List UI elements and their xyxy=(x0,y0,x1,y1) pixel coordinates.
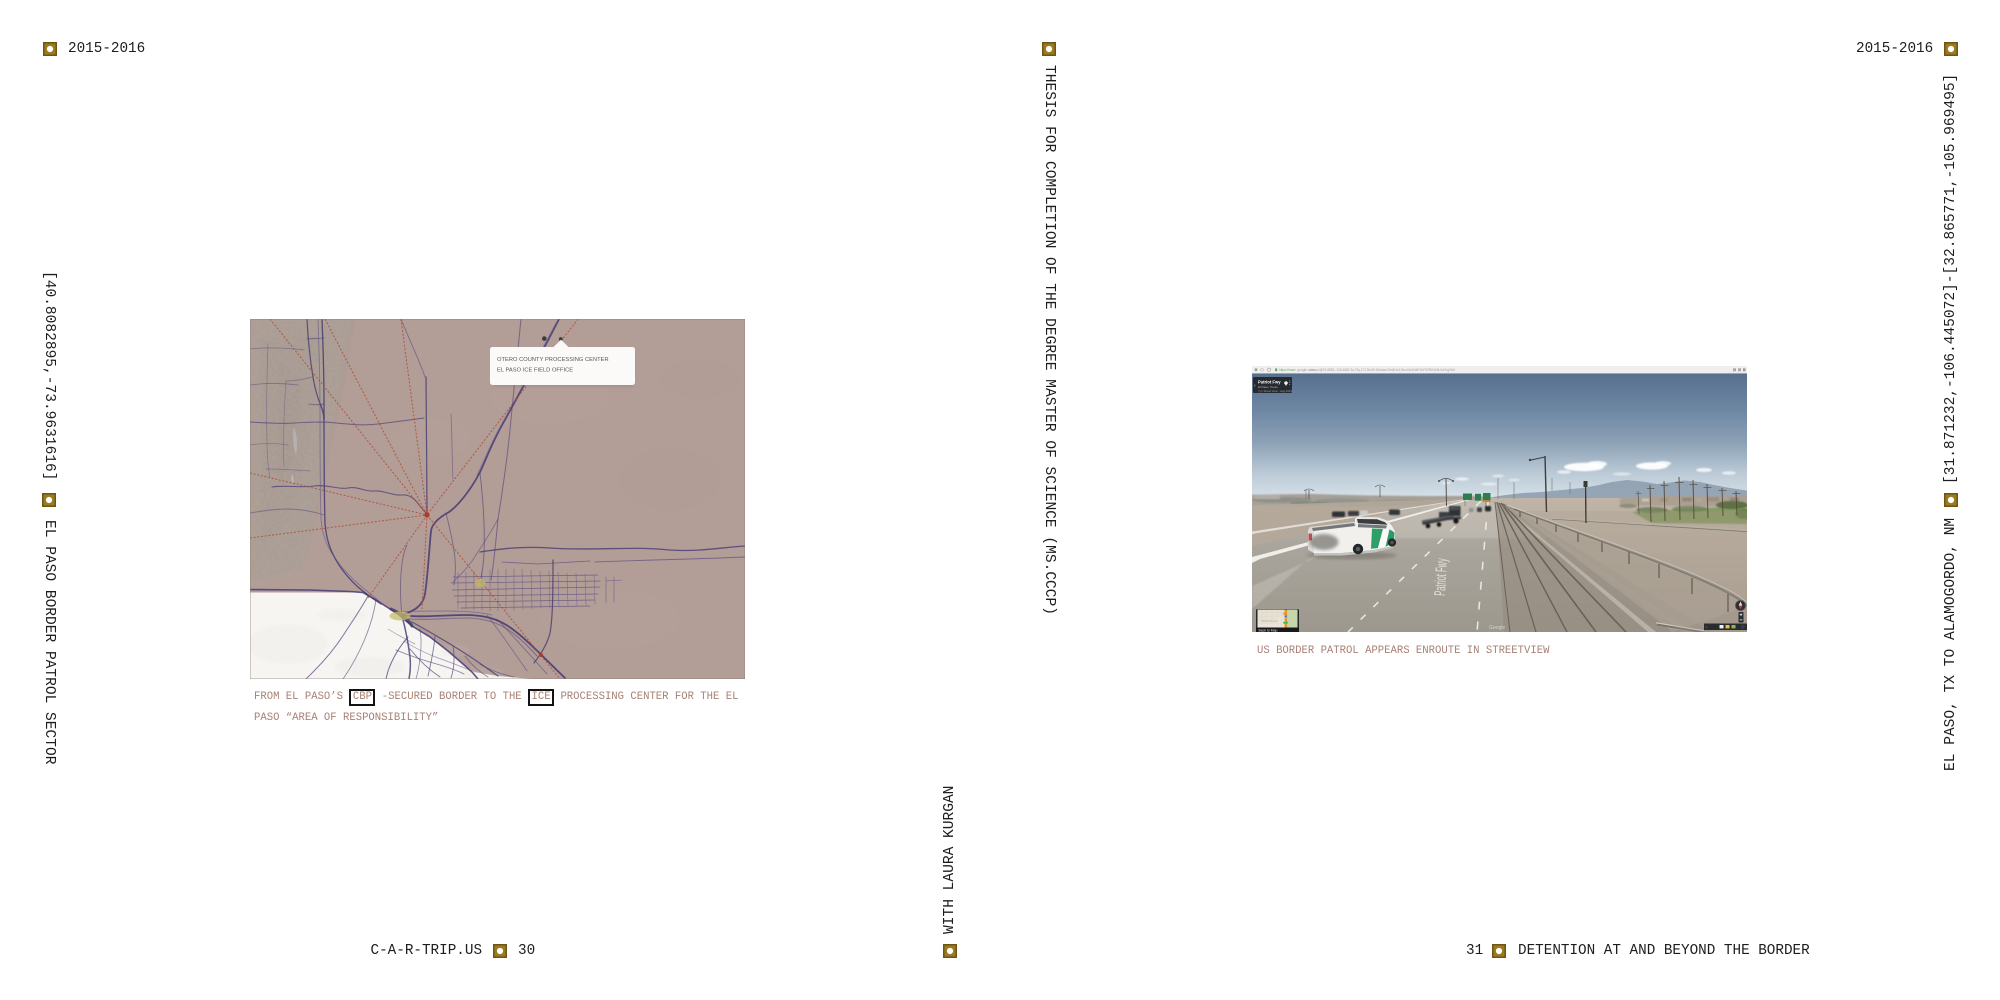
svg-text:Google: Google xyxy=(1489,625,1505,631)
svg-text:Patriot Fwy: Patriot Fwy xyxy=(1431,557,1451,596)
svg-text:https://www: https://www xyxy=(1279,368,1296,372)
svg-text:›: › xyxy=(1706,625,1707,629)
svg-text:OTERO COUNTY PROCESSING CENTER: OTERO COUNTY PROCESSING CENTER xyxy=(497,357,609,363)
svg-text:Wyoming Ave: Wyoming Ave xyxy=(1262,619,1278,623)
svg-text:EL PASO ICE FIELD OFFICE: EL PASO ICE FIELD OFFICE xyxy=(497,368,573,374)
svg-text:Patriot Fwy: Patriot Fwy xyxy=(1258,380,1281,385)
svg-text:/maps/@31.8553,-106.4882,3a,75: /maps/@31.8553,-106.4882,3a,75y,171.9h,8… xyxy=(1310,368,1455,372)
svg-text:◷ L Street View - Aug 2016: ◷ L Street View - Aug 2016 xyxy=(1258,389,1292,393)
svg-text:Back to Map: Back to Map xyxy=(1259,629,1278,633)
